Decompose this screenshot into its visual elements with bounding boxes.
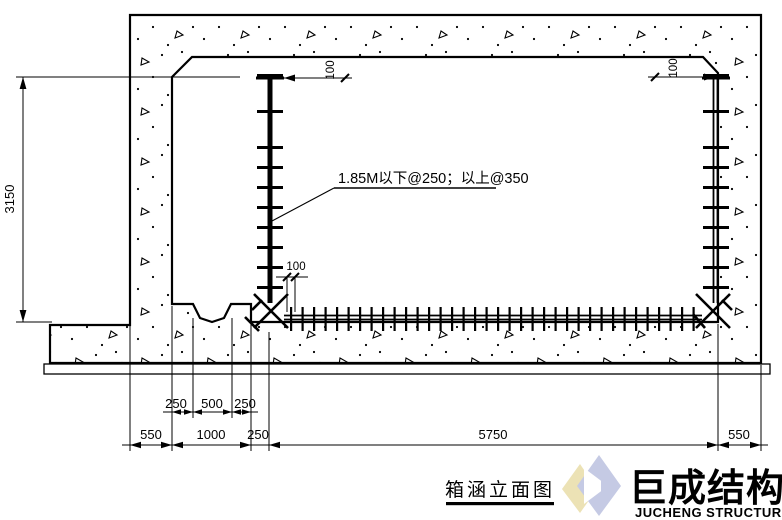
dim-bottom-row: 550 1000 250 5750 550 [122,427,768,448]
drawing-canvas: 3150 100 100 100 1.85M以下@250；以上@350 [0,0,782,520]
dim-offset-top-left-label: 100 [325,60,337,79]
bedding-layer [44,364,770,374]
dim-bottom-3: 5750 [479,427,508,442]
dim-bottom-4: 550 [728,427,750,442]
title-underline [446,502,554,505]
dim-channel-1: 500 [201,396,223,411]
left-wall-rebar [256,74,284,303]
dim-bottom-2: 250 [247,427,269,442]
dim-channel-row: 250 500 250 [163,396,258,415]
dim-bottom-0: 550 [140,427,162,442]
drawing-title: 箱涵立面图 [445,479,555,505]
dim-wall-height-label: 3150 [2,185,17,214]
dim-offset-top-right: 100 [648,58,716,81]
dim-offset-top-left: 100 [283,60,352,82]
logo: 巨成结构 JUCHENG STRUCTURE [562,455,782,520]
dim-bottom-1: 1000 [197,427,226,442]
logo-text-en: JUCHENG STRUCTURE [635,505,782,520]
title-text: 箱涵立面图 [445,479,555,501]
dim-channel-0: 250 [165,396,187,411]
note-leader [272,188,334,221]
logo-text-zh: 巨成结构 [629,468,782,510]
dim-channel-2: 250 [234,396,256,411]
floor-rebar [284,316,702,320]
dim-wall-height: 3150 [2,77,240,322]
rebar-note: 1.85M以下@250；以上@350 [272,170,529,221]
dim-offset-floor-label: 100 [286,261,305,273]
rebar-note-text: 1.85M以下@250；以上@350 [338,170,529,187]
dim-offset-top-right-label: 100 [668,58,680,77]
